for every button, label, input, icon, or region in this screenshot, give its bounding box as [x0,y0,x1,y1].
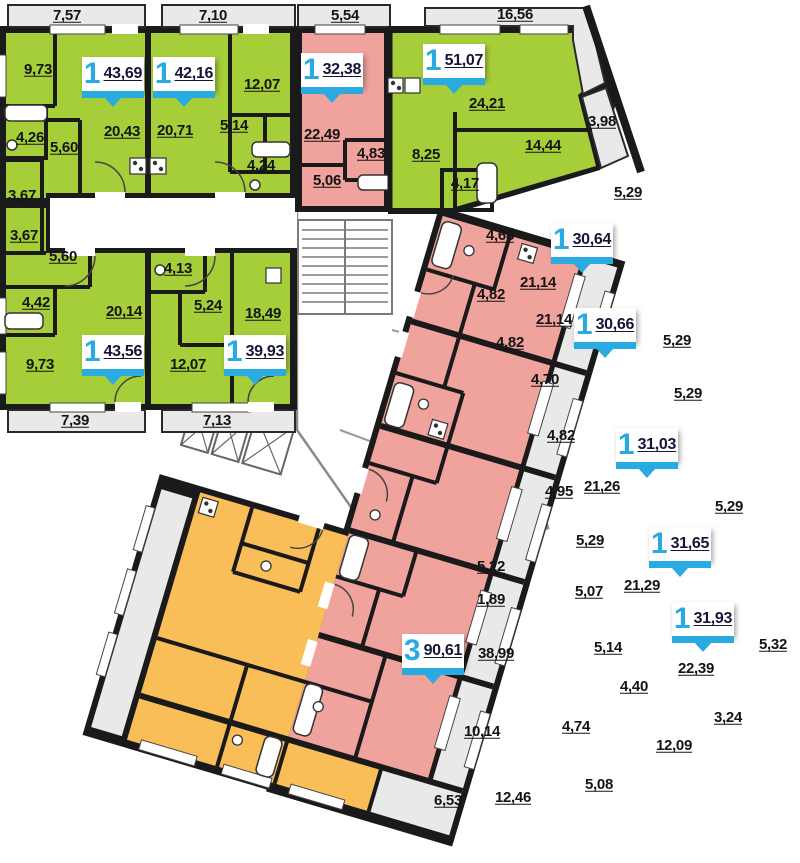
bathtub-icon [477,163,497,203]
floor-plan: 7,577,105,5416,569,7312,0720,4320,715,14… [0,0,800,863]
staircase [298,220,392,314]
bathtub-icon [5,105,47,121]
top-middle-apartment [295,5,396,212]
toilet-icon [155,265,165,275]
bathtub-icon [252,142,290,157]
top-right-apartment [388,6,641,214]
floor-plan-drawing [0,0,800,863]
bathtub-icon [5,313,43,329]
left-wing [0,5,297,432]
toilet-icon [7,140,17,150]
toilet-icon [250,180,260,190]
